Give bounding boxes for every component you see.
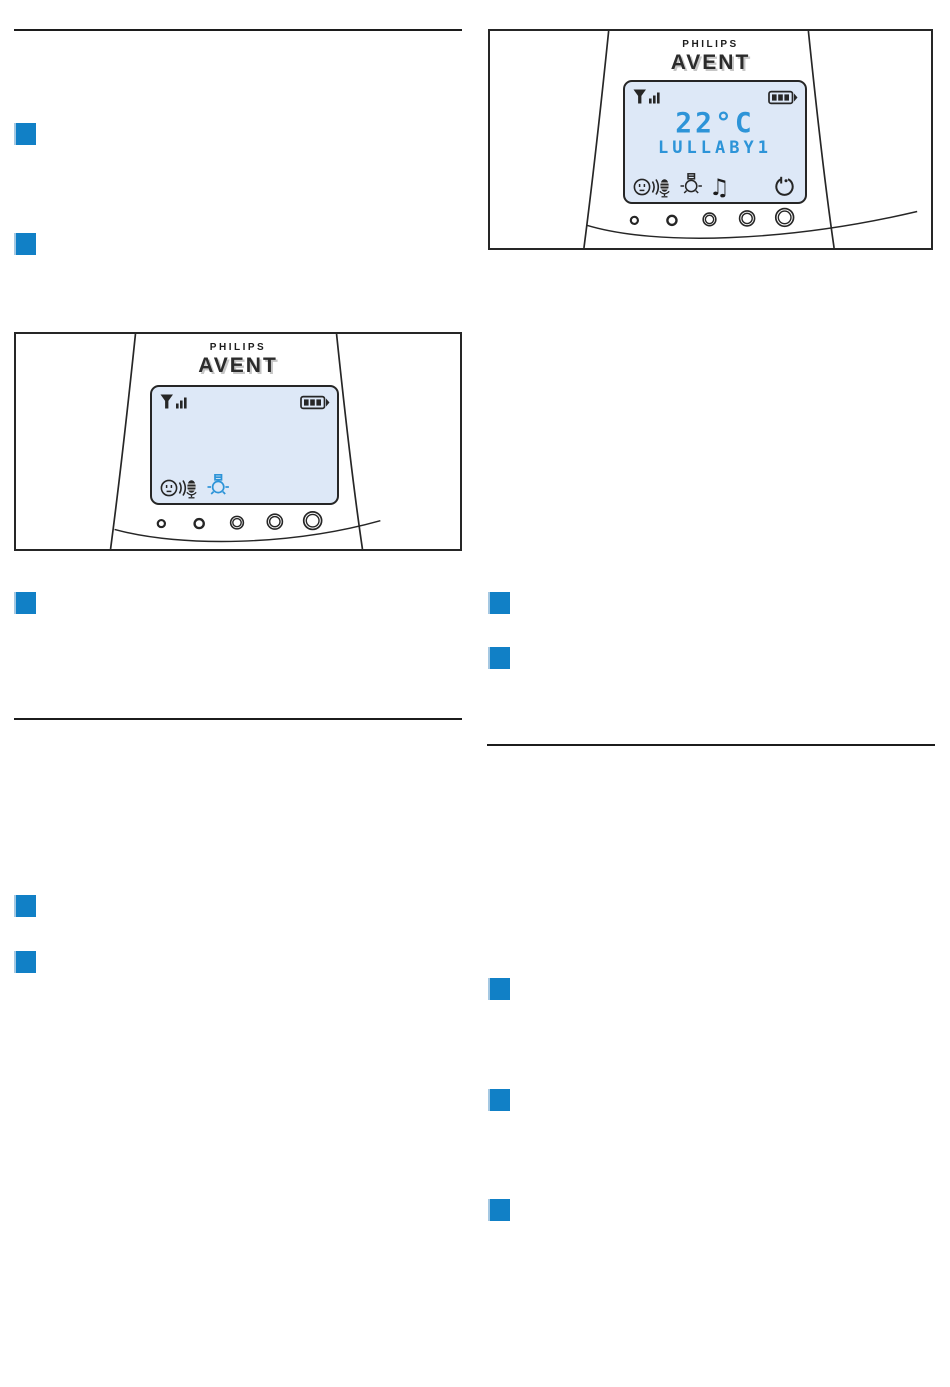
section-divider	[14, 718, 462, 720]
device-button	[158, 520, 165, 527]
device-base-curve	[115, 521, 381, 542]
device-buttons	[158, 512, 322, 530]
talk-back-icon	[160, 476, 198, 499]
battery-full-icon	[300, 395, 330, 410]
illustration-parent-unit-nightlight: PHILIPS AVENT	[14, 332, 462, 551]
signal-strength-icon	[160, 394, 187, 411]
brand-logo: PHILIPS AVENT	[16, 343, 460, 376]
section-divider	[487, 744, 935, 746]
step-number-marker	[488, 647, 510, 669]
step-number-marker	[14, 895, 36, 917]
lullaby-note-icon: ♫	[709, 177, 730, 200]
temperature-readout: 22°C	[625, 106, 805, 139]
step-number-marker	[14, 233, 36, 255]
lullaby-readout: LULLABY1	[625, 138, 805, 158]
section-divider	[14, 29, 462, 31]
philips-wordmark: PHILIPS	[16, 343, 460, 353]
talk-back-icon	[633, 175, 671, 198]
nightlight-icon-active	[206, 474, 230, 498]
avent-wordmark: AVENT	[490, 52, 931, 73]
power-timer-icon	[774, 176, 795, 197]
nightlight-icon	[679, 173, 703, 197]
step-number-marker	[488, 1089, 510, 1111]
device-button	[667, 216, 676, 225]
display-function-icons: ♫	[633, 174, 797, 198]
avent-wordmark: AVENT	[16, 355, 460, 376]
step-number-marker	[488, 978, 510, 1000]
step-number-marker	[14, 592, 36, 614]
step-number-marker	[14, 951, 36, 973]
manual-page: PHILIPS AVENT 22°C LULLABY1	[0, 0, 950, 1387]
step-number-marker	[488, 592, 510, 614]
battery-full-icon	[768, 90, 798, 105]
display-function-icons	[160, 475, 329, 499]
device-button	[631, 217, 638, 224]
signal-strength-icon	[633, 89, 660, 106]
device-display: 22°C LULLABY1	[623, 80, 807, 204]
illustration-parent-unit-lullaby: PHILIPS AVENT 22°C LULLABY1	[488, 29, 933, 250]
device-buttons	[631, 209, 794, 227]
device-display	[150, 385, 339, 505]
brand-logo: PHILIPS AVENT	[490, 40, 931, 73]
device-button	[195, 519, 204, 528]
step-number-marker	[14, 123, 36, 145]
philips-wordmark: PHILIPS	[490, 40, 931, 50]
step-number-marker	[488, 1199, 510, 1221]
